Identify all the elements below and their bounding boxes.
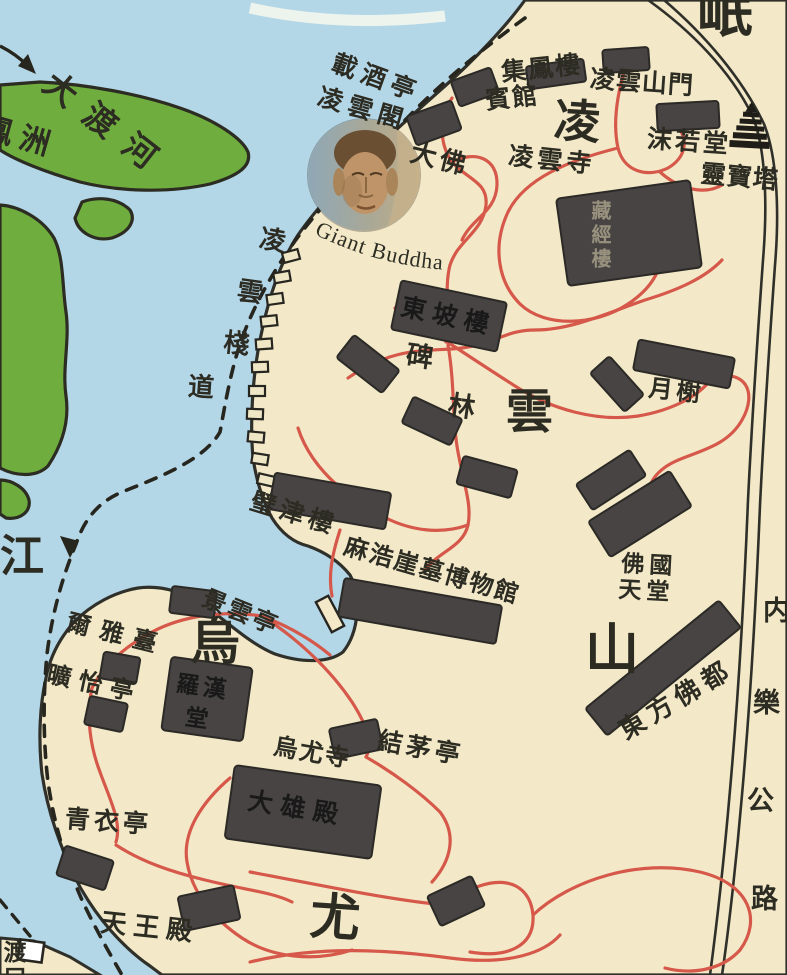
buddha-photo-art — [308, 119, 420, 231]
lingyun-char-0: 凌 — [553, 96, 602, 147]
small-islet-shape — [0, 480, 29, 518]
sutra-library-label: 藏經樓 — [589, 200, 610, 272]
plank-road-char-0: 凌 — [257, 226, 287, 257]
qingyi-pavilion-label: 青衣亭 — [64, 806, 153, 838]
ferry-crossing-label: 渡口 — [0, 940, 24, 975]
neile-highway-char-3: 路 — [751, 886, 778, 914]
moruo-hall-label: 沫若堂 — [646, 126, 732, 158]
west-bank-strip — [0, 205, 67, 475]
luohan-hall-label: 羅漢 堂 — [170, 672, 231, 735]
stele-forest-char-0: 碑 — [404, 342, 435, 374]
lingbao-pagoda-label: 靈寶塔 — [700, 161, 780, 194]
dadu-arrowhead — [18, 54, 36, 74]
wuyou-char-1: 尤 — [308, 890, 362, 946]
neile-highway-char-2: 公 — [747, 788, 774, 816]
leshan-tourist-map: Giant Buddha 大渡河 鳳洲 岷 江 載酒亭 凌雲閣 集鳳樓 賓館 凌… — [0, 0, 787, 975]
min-river-char-jiang: 江 — [0, 534, 44, 580]
islet-shape — [75, 199, 132, 239]
plank-road-char-2: 棧 — [222, 330, 251, 360]
neile-highway-char-0: 内 — [763, 598, 787, 626]
jifeng-hotel-label-line2: 賓館 — [484, 82, 540, 114]
min-river-char-min: 岷 — [697, 0, 753, 43]
luohan-hall-label-line1: 羅漢 — [175, 672, 232, 703]
sandbar — [250, 8, 445, 21]
buddhist-paradise-label-line2: 天堂 — [618, 578, 675, 605]
stele-forest-char-1: 林 — [446, 392, 477, 424]
lingyun-char-1: 雲 — [506, 388, 553, 437]
lingyun-char-2: 山 — [585, 622, 639, 679]
giant-buddha-photo — [308, 119, 420, 231]
neile-highway-char-1: 樂 — [753, 690, 780, 718]
lingyun-temple-building — [556, 180, 702, 286]
buddhist-paradise-label-line1: 佛國 — [621, 552, 678, 579]
plank-road-char-1: 雲 — [235, 278, 265, 309]
moon-pavilion-label: 月榭 — [647, 376, 705, 407]
wuyou-char-0: 烏 — [190, 616, 240, 669]
ferry-route-dashed-spur — [0, 900, 30, 936]
plank-road-char-3: 道 — [187, 374, 215, 403]
